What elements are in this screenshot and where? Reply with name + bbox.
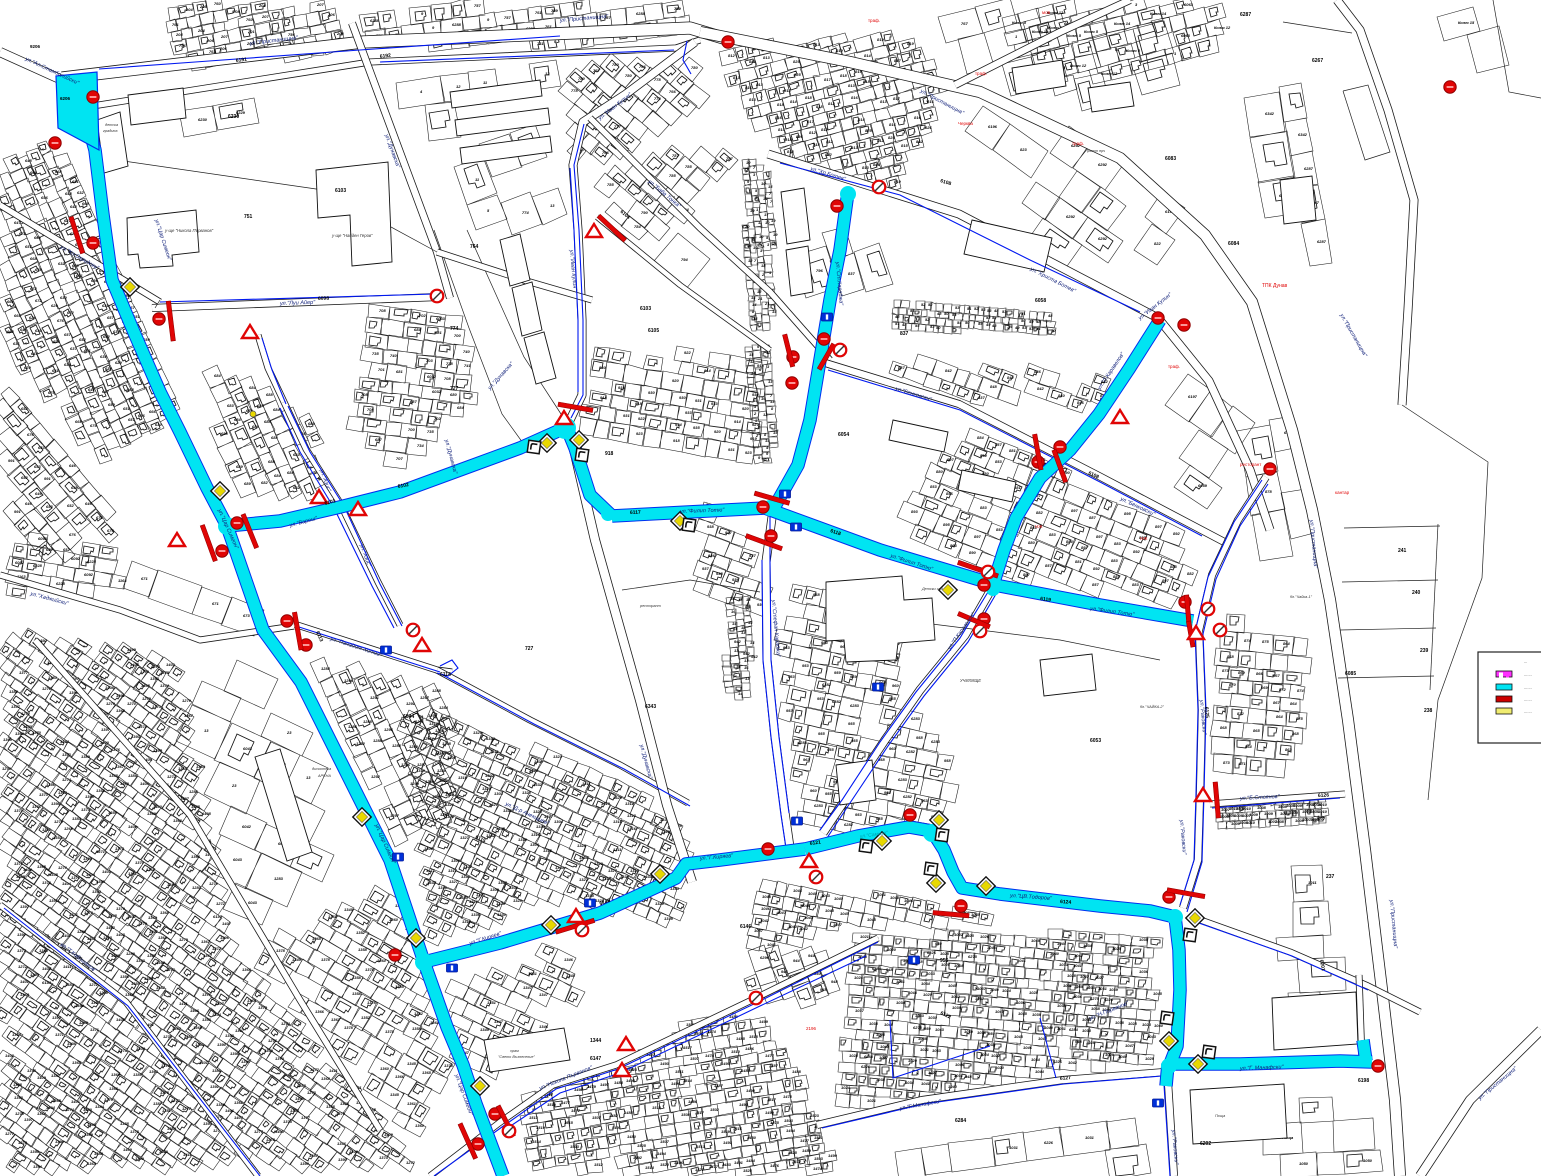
svg-text:1360: 1360 (415, 1123, 425, 1128)
svg-text:1360: 1360 (116, 708, 126, 713)
svg-text:1361: 1361 (407, 1101, 417, 1106)
svg-text:676: 676 (69, 532, 76, 537)
svg-text:1379: 1379 (336, 1111, 346, 1116)
svg-text:1356: 1356 (49, 898, 59, 903)
svg-text:1400: 1400 (153, 804, 163, 809)
svg-text:826: 826 (796, 134, 803, 139)
svg-text:6287: 6287 (1317, 239, 1327, 244)
svg-text:1360: 1360 (120, 781, 130, 786)
svg-text:1400: 1400 (100, 740, 110, 745)
svg-text:764: 764 (470, 244, 479, 250)
svg-text:1042: 1042 (1074, 953, 1084, 958)
svg-text:1377: 1377 (17, 948, 27, 953)
svg-text:13: 13 (204, 728, 209, 733)
svg-text:812: 812 (877, 138, 884, 143)
svg-text:6226: 6226 (1044, 1140, 1054, 1145)
svg-text:890: 890 (980, 453, 987, 458)
svg-text:681: 681 (435, 330, 442, 335)
svg-text:1474: 1474 (813, 1166, 823, 1171)
svg-text:953: 953 (786, 708, 793, 713)
svg-text:14: 14 (750, 640, 755, 645)
svg-text:676: 676 (96, 515, 103, 520)
svg-text:818: 818 (840, 73, 847, 78)
svg-text:1382: 1382 (51, 1073, 61, 1078)
svg-text:751: 751 (244, 214, 253, 220)
svg-text:6105: 6105 (648, 328, 659, 334)
svg-text:680: 680 (450, 392, 457, 397)
svg-text:1279: 1279 (142, 696, 152, 701)
svg-text:689: 689 (236, 464, 243, 469)
svg-text:1029: 1029 (908, 1058, 918, 1063)
svg-text:1360: 1360 (148, 915, 158, 920)
svg-text:1031: 1031 (1085, 1135, 1095, 1140)
svg-text:635: 635 (105, 366, 112, 371)
svg-text:1039: 1039 (918, 1036, 928, 1041)
svg-text:1491: 1491 (723, 1140, 733, 1145)
svg-text:933: 933 (618, 385, 625, 390)
svg-text:657: 657 (25, 244, 32, 249)
svg-text:914: 914 (704, 368, 711, 373)
svg-text:1043: 1043 (1147, 1034, 1157, 1039)
svg-text:1371: 1371 (96, 849, 106, 854)
svg-text:652: 652 (79, 337, 86, 342)
svg-text:1359: 1359 (75, 1003, 85, 1008)
svg-text:15: 15 (768, 184, 773, 189)
svg-text:684: 684 (234, 417, 241, 422)
svg-text:16: 16 (763, 196, 768, 201)
svg-text:812: 812 (916, 139, 923, 144)
svg-text:689: 689 (257, 403, 264, 408)
svg-text:6084: 6084 (1228, 241, 1239, 247)
svg-text:14: 14 (738, 691, 743, 696)
svg-text:766: 766 (602, 150, 609, 155)
svg-text:684: 684 (249, 385, 256, 390)
svg-text:1047: 1047 (833, 922, 843, 927)
svg-text:1034: 1034 (1083, 943, 1093, 948)
svg-text:822: 822 (1154, 241, 1161, 246)
svg-text:Колю 14: Колю 14 (1150, 11, 1167, 16)
svg-text:1514: 1514 (683, 1078, 693, 1083)
svg-text:682: 682 (261, 480, 268, 485)
svg-text:6284: 6284 (955, 1118, 966, 1124)
svg-text:6114: 6114 (440, 672, 451, 678)
svg-text:1314: 1314 (531, 832, 541, 837)
svg-text:1279: 1279 (104, 1097, 114, 1102)
svg-text:1031: 1031 (1098, 986, 1108, 991)
svg-text:1028: 1028 (1086, 1040, 1096, 1045)
svg-text:651: 651 (72, 179, 79, 184)
svg-text:812: 812 (828, 101, 835, 106)
svg-text:914: 914 (675, 422, 682, 427)
svg-text:1275: 1275 (15, 1111, 25, 1116)
svg-text:14: 14 (772, 309, 777, 314)
svg-text:1046: 1046 (904, 898, 914, 903)
svg-text:1319: 1319 (602, 876, 612, 881)
svg-text:813: 813 (756, 82, 763, 87)
svg-text:1318: 1318 (518, 837, 528, 842)
svg-text:646: 646 (35, 491, 42, 496)
svg-text:1492: 1492 (633, 1155, 643, 1160)
svg-text:812: 812 (826, 139, 833, 144)
svg-text:1518: 1518 (652, 1105, 662, 1110)
svg-text:208: 208 (336, 31, 344, 36)
svg-text:785: 785 (607, 182, 614, 187)
svg-text:842: 842 (1037, 386, 1044, 391)
svg-text:1345: 1345 (395, 984, 405, 989)
svg-text:1514: 1514 (645, 1165, 655, 1170)
svg-text:812: 812 (809, 130, 816, 135)
svg-text:816: 816 (914, 115, 921, 120)
svg-text:1382: 1382 (156, 985, 166, 990)
svg-text:1372: 1372 (151, 664, 161, 669)
svg-text:1353: 1353 (195, 1042, 205, 1047)
svg-text:1358: 1358 (352, 991, 362, 996)
svg-text:864: 864 (1283, 641, 1290, 646)
svg-text:Колю 15: Колю 15 (1458, 20, 1475, 25)
svg-text:1317: 1317 (462, 919, 472, 924)
svg-text:1484: 1484 (614, 1080, 624, 1085)
svg-text:1346: 1346 (539, 1024, 549, 1029)
svg-text:207: 207 (261, 14, 269, 19)
svg-text:756: 756 (179, 43, 186, 48)
svg-text:53: 53 (1002, 309, 1007, 314)
svg-text:1039: 1039 (1032, 1012, 1042, 1017)
svg-text:1045: 1045 (948, 983, 958, 988)
svg-text:1269: 1269 (64, 826, 74, 831)
svg-text:1380: 1380 (159, 1149, 169, 1154)
svg-text:1374: 1374 (379, 1155, 389, 1160)
svg-text:1392: 1392 (58, 790, 68, 795)
svg-text:1402: 1402 (106, 925, 116, 930)
svg-text:208: 208 (258, 3, 266, 8)
svg-text:918: 918 (605, 451, 614, 457)
svg-text:665: 665 (75, 419, 82, 424)
svg-text:759: 759 (551, 8, 558, 13)
svg-text:1398: 1398 (51, 801, 61, 806)
svg-text:1040: 1040 (1118, 1054, 1128, 1059)
svg-text:1043: 1043 (821, 893, 831, 898)
svg-text:1028: 1028 (849, 1053, 859, 1058)
svg-text:6287: 6287 (1240, 12, 1251, 18)
svg-text:1288: 1288 (363, 719, 373, 724)
svg-text:Колю 5: Колю 5 (1012, 20, 1027, 25)
svg-text:1332: 1332 (486, 833, 496, 838)
svg-text:1401: 1401 (166, 662, 176, 667)
svg-text:1332: 1332 (486, 736, 496, 741)
svg-text:1519: 1519 (721, 1129, 731, 1134)
svg-text:1477: 1477 (571, 1108, 581, 1113)
svg-text:1491: 1491 (612, 1125, 622, 1130)
svg-text:1274: 1274 (281, 1021, 291, 1026)
svg-text:645: 645 (65, 191, 72, 196)
svg-text:933: 933 (685, 410, 692, 415)
svg-text:кантар: кантар (1335, 490, 1350, 495)
svg-text:1327: 1327 (460, 835, 470, 840)
svg-text:НЖ: НЖ (1035, 524, 1043, 529)
svg-text:1319: 1319 (458, 775, 468, 780)
svg-text:1272: 1272 (167, 774, 177, 779)
svg-text:1359: 1359 (108, 810, 118, 815)
svg-text:1484: 1484 (746, 1158, 756, 1163)
svg-text:1364: 1364 (167, 1126, 177, 1131)
svg-text:948: 948 (831, 979, 838, 984)
svg-text:1298: 1298 (442, 741, 452, 746)
svg-text:948: 948 (886, 967, 893, 972)
svg-text:1483: 1483 (741, 1068, 751, 1073)
svg-text:50: 50 (936, 325, 941, 330)
svg-text:1404: 1404 (86, 872, 96, 877)
svg-text:1039: 1039 (964, 1029, 974, 1034)
svg-text:детска: детска (105, 123, 118, 127)
svg-text:12: 12 (763, 412, 768, 417)
svg-text:953: 953 (788, 674, 795, 679)
svg-text:960: 960 (889, 746, 896, 751)
svg-text:53: 53 (955, 305, 960, 310)
svg-text:1389: 1389 (133, 1072, 143, 1077)
svg-text:870: 870 (1229, 682, 1236, 687)
svg-text:812: 812 (728, 53, 735, 58)
svg-text:16: 16 (731, 609, 736, 614)
svg-text:1383: 1383 (65, 982, 75, 987)
svg-text:15: 15 (749, 352, 754, 357)
svg-text:6287: 6287 (1304, 166, 1314, 171)
svg-text:6033: 6033 (436, 316, 446, 321)
svg-text:6282: 6282 (832, 699, 842, 704)
svg-text:1520: 1520 (660, 1162, 670, 1167)
svg-text:883: 883 (1049, 532, 1056, 537)
svg-text:1384: 1384 (72, 816, 82, 821)
svg-text:1364: 1364 (20, 992, 30, 997)
svg-text:1317: 1317 (426, 868, 436, 873)
svg-text:884: 884 (1066, 539, 1073, 544)
svg-text:837: 837 (978, 395, 985, 400)
svg-text:657: 657 (128, 417, 135, 422)
svg-text:1392: 1392 (156, 960, 166, 965)
svg-text:665: 665 (127, 387, 134, 392)
svg-text:817: 817 (893, 96, 900, 101)
svg-text:1477: 1477 (561, 1100, 571, 1105)
svg-text:895: 895 (943, 522, 950, 527)
svg-text:1329: 1329 (661, 829, 671, 834)
svg-text:1285: 1285 (392, 743, 402, 748)
svg-text:1281: 1281 (162, 1108, 172, 1113)
svg-text:1499: 1499 (765, 1110, 775, 1115)
svg-text:1490: 1490 (739, 1102, 749, 1107)
svg-text:1388: 1388 (39, 948, 49, 953)
svg-text:1040: 1040 (990, 987, 1000, 992)
svg-text:17: 17 (764, 212, 769, 217)
svg-text:991: 991 (14, 509, 21, 514)
svg-text:1008: 1008 (1275, 819, 1285, 824)
svg-text:780: 780 (691, 65, 698, 70)
svg-text:1358: 1358 (412, 1026, 422, 1031)
svg-text:1041: 1041 (896, 979, 906, 984)
svg-text:1273: 1273 (2, 766, 12, 771)
svg-text:648: 648 (70, 204, 77, 209)
svg-text:893: 893 (950, 543, 957, 548)
svg-text:1378: 1378 (321, 957, 331, 962)
svg-text:687: 687 (375, 437, 382, 442)
svg-text:1390: 1390 (217, 1042, 227, 1047)
svg-text:646: 646 (71, 485, 78, 490)
svg-text:1040: 1040 (788, 924, 798, 929)
svg-text:653: 653 (34, 464, 41, 469)
svg-text:1371: 1371 (69, 912, 79, 917)
svg-text:944: 944 (781, 969, 788, 974)
svg-text:637: 637 (70, 346, 77, 351)
svg-text:.......: ....... (1524, 709, 1532, 714)
svg-text:1397: 1397 (153, 748, 163, 753)
svg-text:1021: 1021 (920, 1047, 930, 1052)
svg-text:1499: 1499 (759, 1019, 769, 1024)
svg-text:1358: 1358 (96, 879, 106, 884)
svg-text:48: 48 (1035, 319, 1041, 324)
svg-text:1029: 1029 (1105, 1052, 1115, 1057)
svg-text:1356: 1356 (337, 1141, 347, 1146)
svg-text:1333: 1333 (630, 868, 640, 873)
svg-text:659: 659 (72, 263, 79, 268)
svg-text:1046: 1046 (801, 903, 811, 908)
svg-text:812: 812 (749, 59, 756, 64)
svg-text:648: 648 (25, 158, 32, 163)
svg-text:665: 665 (82, 201, 89, 206)
svg-text:646: 646 (85, 501, 92, 506)
svg-text:935: 935 (693, 425, 700, 430)
svg-text:1379: 1379 (116, 906, 126, 911)
svg-text:1047: 1047 (1125, 1043, 1135, 1048)
svg-text:1272: 1272 (171, 1098, 181, 1103)
svg-text:1041: 1041 (1073, 963, 1083, 968)
svg-text:1367: 1367 (115, 764, 125, 769)
svg-text:градина: градина (103, 129, 118, 133)
svg-text:1392: 1392 (14, 1095, 24, 1100)
svg-text:6342: 6342 (1265, 111, 1275, 116)
svg-text:873: 873 (1222, 668, 1229, 673)
svg-text:1389: 1389 (81, 754, 91, 759)
svg-text:6206: 6206 (60, 96, 71, 101)
svg-text:1273: 1273 (118, 1048, 128, 1053)
svg-text:ресторант: ресторант (1240, 462, 1261, 467)
svg-text:1521: 1521 (695, 1167, 705, 1172)
svg-text:Детски сад: Детски сад (921, 587, 943, 591)
svg-text:1277: 1277 (254, 1129, 264, 1134)
svg-text:205: 205 (199, 4, 207, 9)
svg-text:878: 878 (1265, 489, 1272, 494)
svg-text:629: 629 (115, 360, 122, 365)
svg-text:6283: 6283 (798, 740, 808, 745)
svg-text:659: 659 (108, 402, 115, 407)
svg-text:6124: 6124 (1060, 899, 1072, 906)
svg-text:632: 632 (77, 190, 84, 195)
svg-text:1290: 1290 (409, 744, 419, 749)
svg-text:1388: 1388 (94, 1151, 104, 1156)
svg-text:1310: 1310 (469, 899, 479, 904)
svg-text:641: 641 (31, 351, 38, 356)
svg-text:708: 708 (444, 376, 451, 381)
svg-text:784: 784 (634, 224, 641, 229)
svg-text:1407: 1407 (234, 1115, 244, 1120)
svg-text:1519: 1519 (536, 1125, 546, 1130)
svg-text:20: 20 (744, 224, 750, 229)
svg-text:922: 922 (638, 416, 645, 421)
svg-text:18: 18 (746, 604, 751, 609)
svg-text:937: 937 (725, 530, 732, 535)
svg-text:1027: 1027 (1095, 975, 1105, 980)
svg-text:1274: 1274 (62, 777, 72, 782)
svg-text:1474: 1474 (707, 1029, 717, 1034)
svg-text:641: 641 (88, 387, 95, 392)
svg-text:1377: 1377 (14, 808, 24, 813)
svg-text:1405: 1405 (141, 683, 151, 688)
svg-text:1327: 1327 (608, 868, 618, 873)
svg-text:1378: 1378 (444, 1063, 454, 1068)
svg-text:53: 53 (1022, 325, 1027, 330)
svg-text:636: 636 (138, 413, 145, 418)
svg-text:1404: 1404 (46, 1105, 56, 1110)
svg-text:780: 780 (578, 76, 585, 81)
svg-text:52: 52 (986, 315, 991, 320)
svg-text:646: 646 (20, 327, 27, 332)
svg-text:1360: 1360 (72, 1060, 82, 1065)
svg-text:бл."ЧАЙКА-2": бл."ЧАЙКА-2" (1140, 705, 1165, 709)
svg-text:1320: 1320 (655, 901, 665, 906)
svg-text:53: 53 (930, 324, 935, 329)
svg-text:1036: 1036 (1016, 1000, 1026, 1005)
svg-text:642: 642 (103, 334, 110, 339)
svg-text:823: 823 (1020, 147, 1027, 152)
svg-text:1317: 1317 (544, 814, 554, 819)
svg-text:1373: 1373 (42, 880, 52, 885)
svg-text:846: 846 (1077, 400, 1084, 405)
svg-text:1508: 1508 (681, 1112, 691, 1117)
svg-text:204: 204 (185, 7, 193, 12)
svg-text:1038: 1038 (1091, 1006, 1101, 1011)
svg-text:1035: 1035 (869, 1021, 879, 1026)
svg-text:1272: 1272 (18, 964, 28, 969)
svg-text:1270: 1270 (58, 865, 68, 870)
svg-text:727: 727 (525, 646, 534, 652)
svg-text:1388: 1388 (16, 874, 26, 879)
svg-text:1407: 1407 (222, 921, 232, 926)
svg-text:757: 757 (504, 15, 511, 20)
svg-text:1354: 1354 (212, 1012, 222, 1017)
svg-text:1024: 1024 (854, 975, 864, 980)
svg-text:1398: 1398 (144, 976, 154, 981)
svg-text:1356: 1356 (120, 974, 130, 979)
svg-text:1042: 1042 (760, 918, 770, 923)
svg-text:1047: 1047 (879, 1055, 889, 1060)
svg-text:1408: 1408 (108, 913, 118, 918)
svg-text:958: 958 (813, 592, 820, 597)
svg-text:1377: 1377 (301, 1115, 311, 1120)
svg-text:6063: 6063 (1184, 2, 1194, 7)
svg-text:52: 52 (928, 302, 933, 307)
svg-text:1042: 1042 (1068, 1060, 1078, 1065)
svg-text:1383: 1383 (48, 675, 58, 680)
svg-text:1517: 1517 (695, 1110, 705, 1115)
svg-text:6043: 6043 (233, 857, 243, 862)
svg-text:1043: 1043 (867, 917, 877, 922)
svg-text:1357: 1357 (11, 704, 21, 709)
svg-text:1352: 1352 (361, 1015, 371, 1020)
svg-text:1513: 1513 (696, 1144, 706, 1149)
svg-text:942: 942 (751, 654, 758, 659)
svg-text:814: 814 (858, 117, 865, 122)
svg-text:1325: 1325 (482, 786, 492, 791)
svg-text:1372: 1372 (138, 724, 148, 729)
svg-text:1353: 1353 (23, 724, 33, 729)
svg-text:1383: 1383 (212, 1068, 222, 1073)
